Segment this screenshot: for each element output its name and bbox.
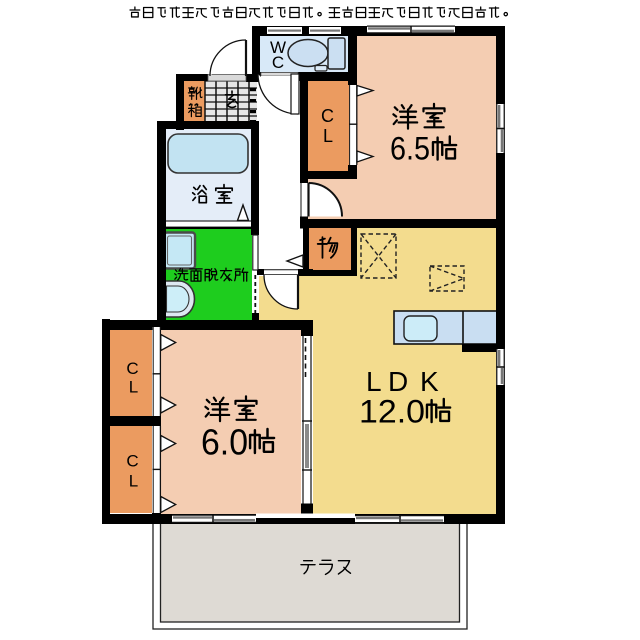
svg-text:6.5: 6.5	[390, 131, 430, 167]
svg-text:6.0: 6.0	[201, 422, 248, 463]
svg-text:C: C	[272, 53, 284, 72]
svg-text:12.0: 12.0	[359, 394, 425, 430]
svg-text:C: C	[321, 106, 334, 126]
svg-text:L: L	[129, 472, 138, 491]
svg-text:D: D	[388, 366, 408, 397]
svg-text:K: K	[420, 366, 439, 397]
svg-text:C: C	[126, 452, 138, 471]
svg-text:L: L	[129, 378, 138, 397]
svg-text:C: C	[126, 359, 138, 378]
svg-text:L: L	[366, 366, 382, 397]
svg-text:L: L	[323, 126, 333, 146]
